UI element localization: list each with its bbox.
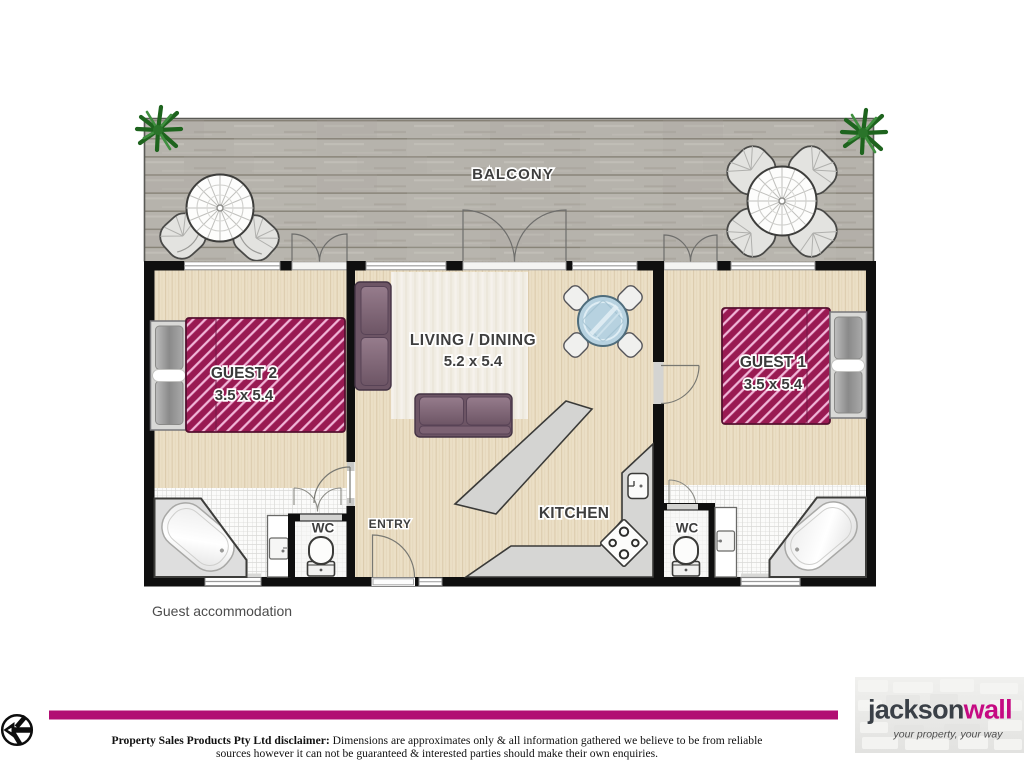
svg-text:GUEST 2: GUEST 2	[211, 365, 277, 382]
svg-text:3.5 x 5.4: 3.5 x 5.4	[744, 376, 803, 393]
svg-text:ENTRY: ENTRY	[369, 517, 412, 531]
svg-text:BALCONY: BALCONY	[472, 166, 554, 183]
svg-text:KITCHEN: KITCHEN	[539, 505, 609, 522]
svg-text:Property Sales Products Pty Lt: Property Sales Products Pty Ltd disclaim…	[112, 734, 763, 747]
svg-text:3.5 x 5.4: 3.5 x 5.4	[215, 387, 274, 404]
svg-text:LIVING / DINING: LIVING / DINING	[410, 332, 536, 349]
svg-text:GUEST 1: GUEST 1	[740, 354, 807, 371]
svg-text:Guest accommodation: Guest accommodation	[152, 603, 292, 619]
svg-text:your property, your way: your property, your way	[893, 729, 1004, 741]
svg-text:jacksonwall: jacksonwall	[867, 695, 1012, 725]
svg-text:sources however it can not be: sources however it can not be guaranteed…	[216, 747, 658, 760]
svg-text:5.2 x 5.4: 5.2 x 5.4	[444, 353, 503, 370]
svg-text:WC: WC	[676, 521, 699, 536]
svg-text:WC: WC	[312, 521, 335, 536]
